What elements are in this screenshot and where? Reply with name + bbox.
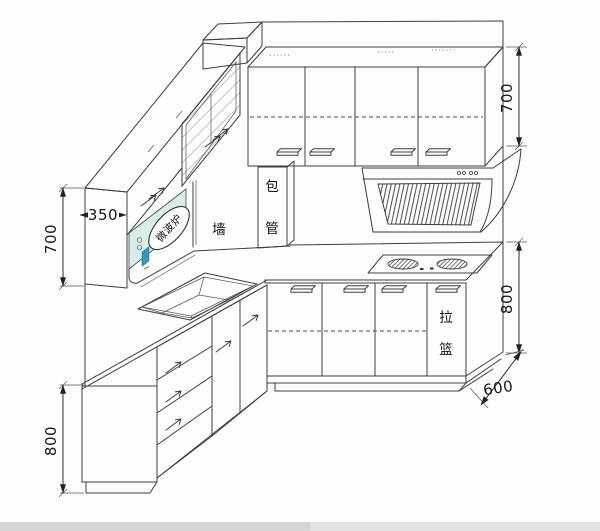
door-handle-arrow-icon — [243, 315, 258, 326]
door-handle — [291, 286, 316, 292]
cooktop-knob — [420, 268, 424, 270]
burner — [388, 259, 418, 269]
dim-800-right-text: 800 — [498, 284, 516, 314]
dim-700-right: 700 — [498, 43, 527, 150]
dim-800-left: 800 — [42, 381, 84, 497]
pipe-box-label-bottom: 管 — [265, 221, 279, 237]
glass-door-cabinet — [182, 53, 240, 186]
sink — [138, 273, 257, 320]
drawer-handle-arrow-icon — [166, 419, 181, 430]
upper-top-face — [248, 47, 503, 67]
dim-350-text: 350 — [88, 206, 118, 224]
pull-basket-label-bottom: 篮 — [439, 342, 453, 358]
pipe-boxing-column: 包 管 — [258, 161, 294, 248]
left-base-cabinets — [82, 285, 267, 493]
hood-grille — [378, 183, 480, 225]
range-hood — [362, 149, 521, 232]
kitchen-cad-drawing: 微波炉 — [0, 0, 600, 531]
door-handle — [310, 149, 335, 155]
drawer-stack — [157, 316, 212, 478]
door-handle — [391, 149, 416, 155]
base-end-panel — [82, 386, 157, 482]
dim-600-text: 600 — [482, 377, 515, 399]
dim-800-right: 800 — [498, 238, 527, 357]
door-handle — [436, 286, 461, 292]
door-handle — [277, 149, 302, 155]
dim-800-left-text: 800 — [42, 426, 60, 456]
wall-cabinet-end-panel — [85, 188, 127, 288]
left-worktop — [82, 273, 267, 389]
bottom-strip-dark — [0, 522, 310, 531]
pull-basket-label-top: 拉 — [439, 310, 453, 326]
drawer-handle-arrow-icon — [166, 362, 181, 373]
drawer-handle-arrow-icon — [166, 391, 181, 402]
burner — [437, 259, 467, 269]
wall-label: 墙 — [212, 222, 226, 238]
cooktop — [368, 255, 492, 273]
door-handle-arrow-icon — [216, 341, 231, 352]
kitchen-drawing-canvas: 微波炉 — [0, 0, 600, 531]
toe-kick — [86, 482, 157, 493]
right-wall-cabinets — [248, 47, 503, 166]
door-handle — [426, 149, 451, 155]
cooktop-knob — [430, 268, 434, 270]
door-handle — [344, 286, 369, 292]
hood-controls — [458, 172, 478, 175]
door-handle — [382, 286, 407, 292]
pipe-box-label-top: 包 — [265, 179, 279, 195]
toe-kick — [275, 383, 466, 391]
dim-700-right-text: 700 — [498, 83, 516, 113]
dim-700-left: 700 — [42, 184, 84, 290]
dim-350: 350 — [80, 205, 126, 224]
upper-front — [248, 67, 485, 166]
sliding-door-arrow-icon — [141, 195, 156, 206]
right-worktop — [265, 242, 503, 283]
dimensions: 350 700 800 700 800 600 — [42, 43, 527, 497]
top-face-marks — [270, 50, 456, 55]
sliding-door-arrow-icon — [149, 188, 164, 199]
dim-700-left-text: 700 — [42, 224, 60, 254]
